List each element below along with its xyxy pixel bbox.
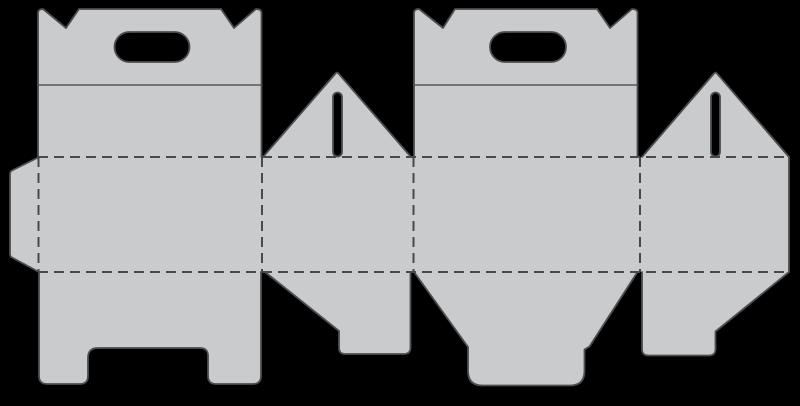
dieline-svg xyxy=(0,0,800,406)
handle-hole-front xyxy=(115,32,190,62)
bottom-flap-front-legs xyxy=(39,272,261,384)
dieline-stage xyxy=(0,0,800,406)
body-band-with-glue-tab xyxy=(10,157,789,272)
lock-slot-left xyxy=(333,93,342,157)
handle-hole-back xyxy=(490,32,566,62)
lock-slot-right xyxy=(711,93,720,157)
bottom-flap-side-left xyxy=(265,272,411,354)
board-pieces-layer xyxy=(10,9,789,386)
bottom-flap-back-tuck xyxy=(414,272,638,386)
